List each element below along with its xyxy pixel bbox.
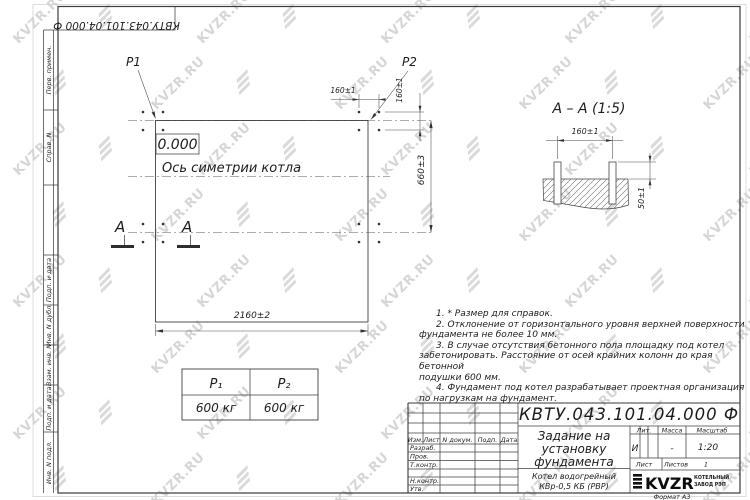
load-p2-label: P2 xyxy=(402,55,417,69)
notes-block: 1. * Размер для справок. 2. Отклонение о… xyxy=(419,309,749,404)
note-line: 4. Фундамент под котел разрабатывает про… xyxy=(419,383,749,394)
dim-plan-height: 660±3 xyxy=(417,121,433,233)
tb-lit-label: Лит. xyxy=(636,427,652,435)
company-logo-text: KVZR xyxy=(645,474,694,493)
note-line: забетонировать. Расстояние от осей крайн… xyxy=(419,351,749,372)
strip-label-podp-data-1: Подп. и дата xyxy=(45,258,53,302)
tb-doc-title-3: фундамента xyxy=(534,455,613,469)
tb-scale-value: 1:20 xyxy=(698,443,718,453)
tb-product-2: КВр-0,5 КБ (РВР) xyxy=(539,482,609,491)
section-letter-left: A xyxy=(114,218,125,236)
tb-mass-label: Масса xyxy=(662,427,683,435)
tb-sheets-label: Листов xyxy=(663,461,688,469)
dim-bolt-spacing-v: 160±1 xyxy=(385,77,424,141)
elevation-value: 0.000 xyxy=(157,137,197,153)
note-line: 3. В случае отсутствия бетонного пола пл… xyxy=(419,341,749,352)
strip-label-podp-data-2: Подп. и дата xyxy=(45,386,53,430)
tb-col-data: Дата xyxy=(500,436,518,444)
format-label: Формат А3 xyxy=(653,493,690,500)
section-view: A – A (1:5) 160±1 50±1 xyxy=(543,101,656,209)
drawing-sheet: KVZR.RUKVZR.RUKVZR.RUKVZR.RUKVZR.RUKVZR.… xyxy=(0,0,750,500)
tb-row-utv: Утв. xyxy=(410,485,424,493)
tb-row-prov: Пров. xyxy=(410,453,429,461)
tb-sheet-label: Лист xyxy=(635,461,653,469)
strip-label-sprav-n: Справ. N xyxy=(45,133,53,163)
section-title: A – A (1:5) xyxy=(552,101,626,117)
tb-col-izm: Изм. xyxy=(408,436,423,444)
table-header-p1: P₁ xyxy=(209,377,222,392)
drawing-canvas: КВТУ.043.101.04.000 Ф Перв. примен. Спра… xyxy=(0,0,750,500)
tb-col-dokum: N докум. xyxy=(442,436,472,444)
dim-bolt-spacing-h: 160±1 xyxy=(330,86,385,108)
svg-text:160±1: 160±1 xyxy=(330,86,355,95)
table-value-p1: 600 кг xyxy=(196,401,237,415)
axis-label: Ось симетрии котла xyxy=(162,161,301,176)
company-name-1: КОТЕЛЬНЫЙ xyxy=(694,473,729,481)
tb-mass-value: - xyxy=(670,444,673,454)
svg-text:660±3: 660±3 xyxy=(417,155,427,186)
anchor-bolts xyxy=(142,111,381,244)
table-header-p2: P₂ xyxy=(277,377,290,392)
note-line: фундамента не более 10 мм. xyxy=(419,330,749,341)
tb-doc-title-2: установку xyxy=(541,442,608,456)
tb-sheets-value: 1 xyxy=(704,461,708,469)
tb-scale-label: Масштаб xyxy=(697,427,728,435)
tb-designation: КВТУ.043.101.04.000 Ф xyxy=(519,405,739,424)
strip-label-inv-podl: Инв. N подл. xyxy=(45,441,53,484)
tb-lit-value: И xyxy=(632,444,639,454)
corner-stamp-designation: КВТУ.043.101.04.000 Ф xyxy=(53,19,180,31)
strip-label-perv-primen: Перв. примен. xyxy=(45,46,53,95)
svg-text:160±1: 160±1 xyxy=(395,77,404,102)
side-strip: Перв. примен. Справ. N Подп. и дата Инв.… xyxy=(44,30,59,493)
tb-row-razrab: Разраб. xyxy=(410,444,436,452)
note-line: 2. Отклонение от горизонтального уровня … xyxy=(419,320,749,331)
tb-doc-title-1: Задание на xyxy=(538,429,611,443)
section-letter-right: A xyxy=(181,218,192,236)
company-name-2: ЗАВОД РЭП xyxy=(694,482,726,488)
tb-product-1: Котел водогрейный xyxy=(532,472,616,481)
strip-label-inv-dubl: Инв. N дубл. xyxy=(45,304,53,347)
dim-section-bolts: 160±1 xyxy=(546,127,623,159)
strip-label-vzam-inv: Взам. инв. N xyxy=(45,344,53,386)
loads-table: P₁ P₂ 600 кг 600 кг xyxy=(182,369,318,420)
anchor-bolt-left xyxy=(554,162,561,204)
tb-col-list: Лист xyxy=(422,436,440,444)
title-block: Изм. Лист N докум. Подп. Дата Разраб. Пр… xyxy=(408,403,740,500)
anchor-bolt-right xyxy=(609,162,616,204)
tb-col-podp: Подп. xyxy=(478,436,498,444)
tb-row-nkontr: Н.контр. xyxy=(410,477,439,485)
load-p1-label: P1 xyxy=(126,55,141,69)
note-line: по нагрузкам на фундамент. xyxy=(419,394,749,405)
company-logo: KVZR КОТЕЛЬНЫЙ ЗАВОД РЭП xyxy=(633,473,729,493)
svg-text:160±1: 160±1 xyxy=(571,127,598,136)
dim-plan-width: 2160±2 xyxy=(156,311,369,336)
svg-text:50±1: 50±1 xyxy=(637,187,646,209)
table-value-p2: 600 кг xyxy=(264,401,305,415)
plan-view: P1 P2 0.000 Ось симетрии котла 2160±2 xyxy=(111,55,434,336)
svg-text:2160±2: 2160±2 xyxy=(234,311,270,321)
note-line: подушки 600 мм. xyxy=(419,373,749,384)
tb-row-tkontr: Т.контр. xyxy=(410,461,438,469)
note-line: 1. * Размер для справок. xyxy=(419,309,749,320)
